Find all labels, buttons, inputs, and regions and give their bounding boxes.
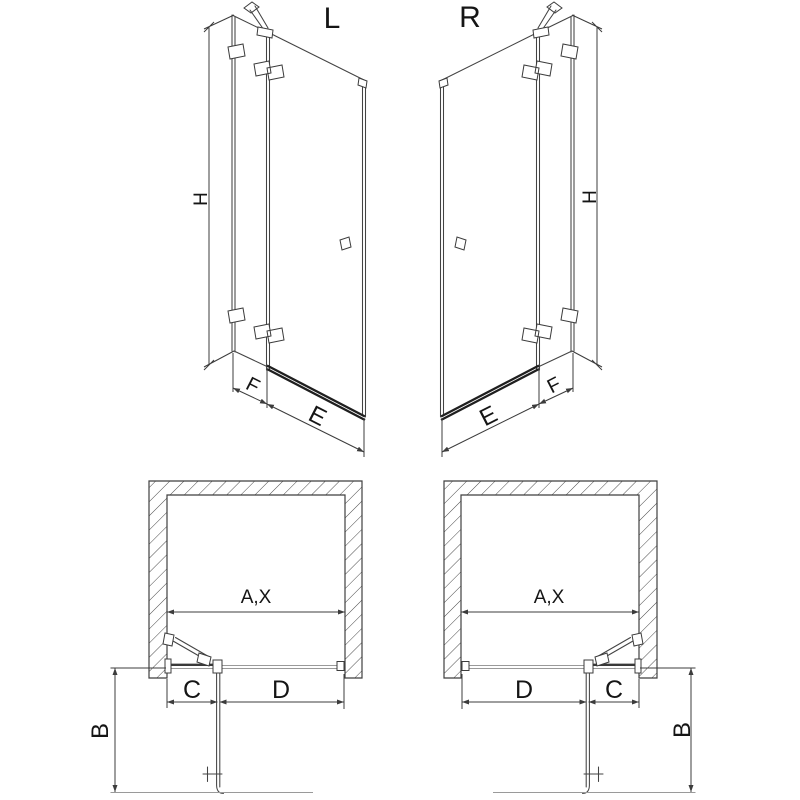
elevation-left: L H F E [191,2,367,457]
dim-label-door-right-plan: D [515,676,533,704]
dim-label-door-left: E [304,401,331,432]
variant-label-right: R [459,1,481,34]
support-arm-clamp [533,27,549,38]
door-end-bracket [462,662,469,671]
walls-hatched [444,481,657,678]
door-handle-plan [584,767,603,782]
dim-label-swing-right-plan: B [669,722,696,738]
door-end-bracket [337,662,344,671]
door-handle [340,237,351,250]
plan-right: A,X C D B [444,481,696,793]
door-corner-cap [439,78,448,88]
dim-label-fixed-right-plan: C [605,676,623,704]
dim-label-height-left: H [191,192,212,206]
door-handle-plan [203,767,222,782]
dim-label-opening-right-plan: A,X [534,587,565,608]
dim-label-fixed-right: F [544,373,565,398]
plan-left: A,X C D B [87,481,362,793]
open-door-leaf [583,673,590,793]
glass-panel-edges [232,15,366,417]
hinge-clamps [228,44,284,343]
elevation-right: R H F E [439,1,602,457]
walls-hatched [149,481,362,678]
dim-label-height-right: H [580,190,601,204]
dim-label-door-right: E [475,401,502,432]
wall-profile [165,659,171,673]
glass-panel-edges [440,15,574,417]
door-corner-cap [358,78,367,88]
diagram-svg: L H F E R H F E [0,0,800,800]
dim-label-opening-left-plan: A,X [241,587,272,608]
shower-door-technical-diagram: L H F E R H F E [0,0,800,800]
dim-label-door-left-plan: D [272,676,290,704]
dim-label-fixed-left-plan: C [183,676,201,704]
support-arm-clamp [257,27,273,38]
dim-label-swing-left-plan: B [87,723,114,739]
door-handle [455,237,466,250]
variant-label-left: L [324,2,341,35]
wall-profile [635,659,641,673]
hinge-clamps [522,44,578,343]
pivot-block [213,660,222,673]
open-door-leaf [217,673,224,793]
pivot-block [584,660,593,673]
dim-label-fixed-left: F [242,373,263,398]
